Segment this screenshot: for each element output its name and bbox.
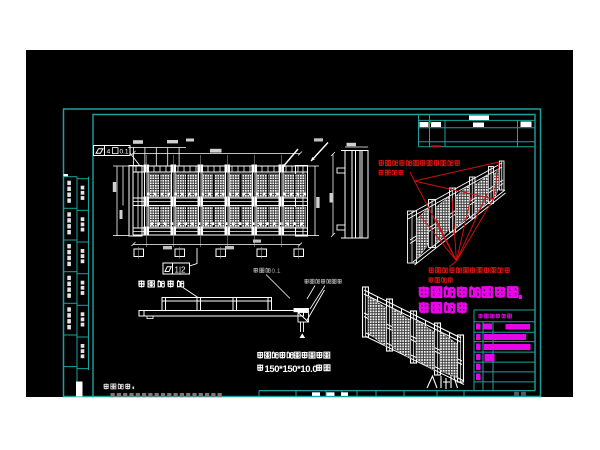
svg-text:4: 4 <box>107 149 111 156</box>
svg-text:150*150*10.0: 150*150*10.0 <box>265 364 318 375</box>
svg-text:0.1: 0.1 <box>120 149 129 156</box>
svg-text:1|2: 1|2 <box>175 265 187 274</box>
svg-text:0.1: 0.1 <box>272 268 281 275</box>
